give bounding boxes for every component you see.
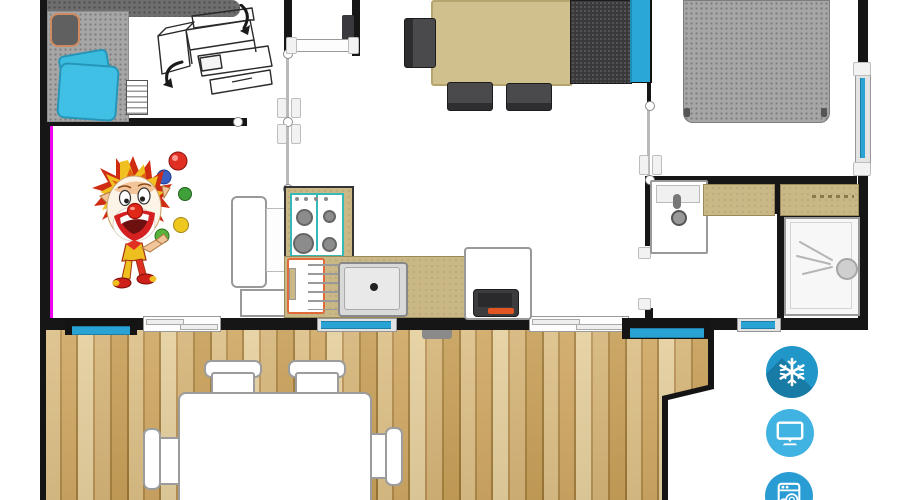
deck-window-glass: [72, 326, 130, 335]
floor-plan-canvas: [0, 0, 900, 500]
faucet-knob: [671, 210, 687, 226]
sliding-door-rail: [180, 324, 218, 330]
door-hinge: [348, 37, 359, 54]
sink-drain: [370, 283, 378, 291]
door-hinge: [286, 37, 297, 54]
bathroom-counter: [780, 184, 859, 216]
dining-table: [431, 0, 573, 86]
wall-joint: [645, 101, 655, 111]
door-hinge: [638, 298, 651, 310]
counter-dashes: [812, 195, 854, 198]
deck-window-glass: [630, 328, 704, 338]
dishwasher-badge: [765, 472, 813, 500]
door-hinge: [652, 155, 662, 175]
dishwasher-icon: [774, 481, 804, 500]
sofa: [570, 0, 632, 84]
tv-badge: [766, 409, 814, 457]
sofa-cushion: [630, 0, 652, 83]
door-hinge: [291, 98, 301, 118]
door-hinge: [291, 124, 301, 144]
outdoor-chair-back: [385, 427, 403, 486]
bed-right: [683, 0, 830, 123]
door-hinge: [277, 124, 287, 144]
fridge-handle: [289, 268, 296, 300]
clown-illustration: [78, 148, 208, 303]
window-hinge: [853, 162, 871, 176]
burner: [293, 233, 314, 254]
outdoor-table: [178, 392, 372, 500]
faucet: [673, 194, 681, 209]
bed-foot: [821, 108, 827, 117]
window-glass: [321, 321, 391, 329]
burner: [323, 210, 336, 223]
snowflake-icon: [776, 356, 808, 388]
stove-knob: [295, 197, 299, 201]
armchair: [50, 13, 80, 47]
stove-knob: [314, 197, 318, 201]
cooktop-divider: [316, 195, 318, 251]
sliding-door-rail: [576, 324, 624, 330]
dining-chair: [404, 18, 436, 68]
tv-icon: [775, 418, 805, 448]
air-conditioning-badge: [766, 346, 818, 398]
cyan-pillow: [56, 62, 120, 122]
sliding-door-rail: [146, 319, 184, 325]
door-hinge: [639, 155, 649, 175]
bunk-bed-illustration: [140, 4, 282, 116]
dining-chair: [506, 83, 552, 111]
wall-joint: [233, 117, 243, 127]
window-hinge: [853, 62, 871, 76]
shower-left-wall: [777, 209, 784, 318]
bathroom-counter: [703, 184, 775, 216]
window-glass: [741, 321, 775, 329]
burner: [296, 209, 313, 226]
sliding-door-rail: [532, 319, 580, 325]
stove-knob: [304, 197, 308, 201]
shower-head: [836, 258, 858, 280]
window-glass: [860, 78, 865, 158]
tv-base: [488, 308, 514, 314]
bed-foot: [684, 108, 690, 117]
interior-door: [293, 39, 353, 52]
stove-knob: [324, 197, 328, 201]
sink-drainer: [308, 264, 338, 310]
burner: [322, 237, 337, 252]
tv-screen: [478, 293, 512, 307]
magenta-accent-line: [50, 126, 53, 318]
fridge: [231, 196, 267, 288]
dining-chair: [447, 82, 493, 111]
outdoor-chair-back: [143, 428, 161, 490]
